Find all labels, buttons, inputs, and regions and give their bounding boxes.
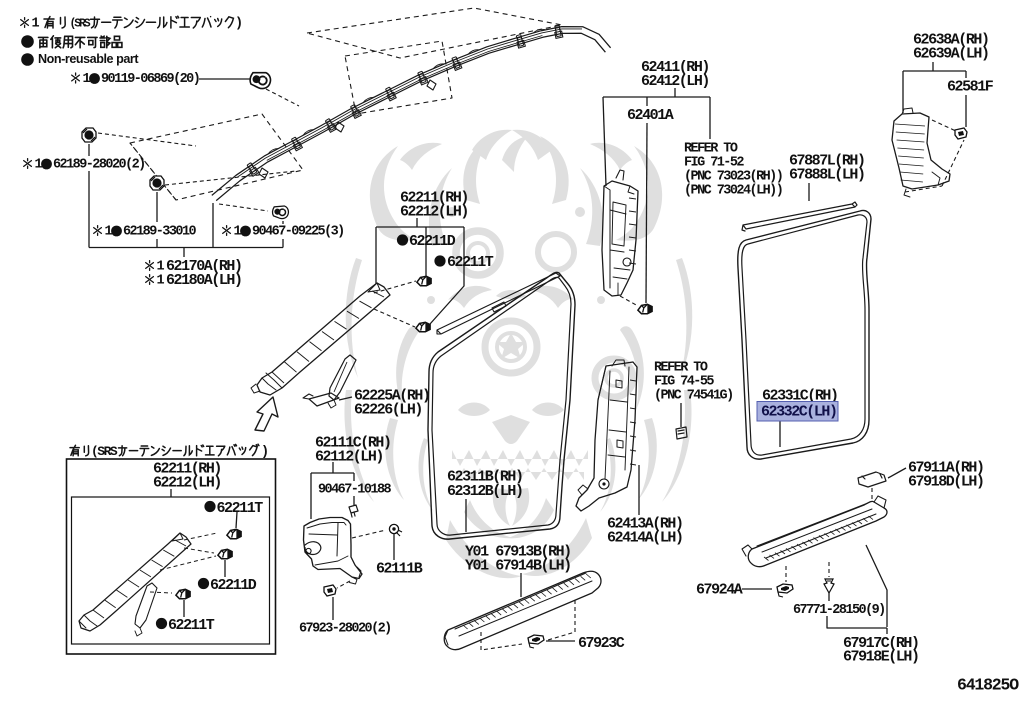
- svg-text:62226(LH): 62226(LH): [354, 402, 422, 419]
- svg-text:67923C: 67923C: [578, 635, 625, 652]
- svg-text:Y01 67914B(LH): Y01 67914B(LH): [465, 558, 571, 575]
- svg-text:FIG 74-55: FIG 74-55: [654, 375, 714, 390]
- svg-text:(PNC 73023(RH)): (PNC 73023(RH)): [684, 170, 782, 185]
- svg-text:62581F: 62581F: [947, 79, 994, 96]
- svg-text:67771-28150(9): 67771-28150(9): [793, 603, 885, 618]
- svg-text:62111B: 62111B: [376, 560, 423, 577]
- svg-text:62189-33010: 62189-33010: [123, 225, 197, 240]
- svg-text:62332C(LH): 62332C(LH): [761, 404, 837, 421]
- svg-text:62189-28020(2): 62189-28020(2): [53, 158, 145, 173]
- svg-text:62211T: 62211T: [217, 500, 264, 517]
- svg-text:62401A: 62401A: [627, 107, 674, 124]
- svg-text:62180A(LH): 62180A(LH): [166, 272, 242, 289]
- svg-text:REFER TO: REFER TO: [654, 361, 708, 376]
- svg-text:67924A: 67924A: [696, 582, 743, 599]
- svg-text:62211D: 62211D: [409, 233, 456, 250]
- svg-text:90467-09225(3): 90467-09225(3): [252, 225, 344, 240]
- svg-text:): ): [261, 445, 268, 460]
- svg-text:67918D(LH): 67918D(LH): [908, 474, 984, 491]
- svg-text:90467-10188: 90467-10188: [318, 483, 392, 498]
- svg-text:(PNC 74541G): (PNC 74541G): [654, 389, 733, 404]
- svg-text:62112(LH): 62112(LH): [315, 449, 383, 466]
- svg-text:62639A(LH): 62639A(LH): [913, 46, 989, 63]
- svg-text:62312B(LH): 62312B(LH): [447, 483, 523, 500]
- svg-text:62414A(LH): 62414A(LH): [607, 530, 683, 547]
- svg-text:62211T: 62211T: [447, 254, 494, 271]
- svg-text:67918E(LH): 67918E(LH): [843, 649, 919, 666]
- svg-text:62211T: 62211T: [168, 617, 215, 634]
- svg-text:62212(LH): 62212(LH): [153, 475, 221, 492]
- svg-text:641825O: 641825O: [957, 676, 1019, 695]
- svg-text:67923-28020(2): 67923-28020(2): [299, 622, 391, 637]
- svg-text:FIG 71-52: FIG 71-52: [684, 156, 744, 171]
- svg-text:67888L(LH): 67888L(LH): [789, 167, 865, 184]
- svg-text:62412(LH): 62412(LH): [641, 73, 709, 90]
- svg-text:(SRS: (SRS: [91, 444, 118, 459]
- svg-text:90119-06869(20): 90119-06869(20): [101, 72, 199, 87]
- svg-text:(SRS: (SRS: [70, 18, 91, 31]
- svg-text:REFER TO: REFER TO: [684, 142, 738, 157]
- svg-text:62211D: 62211D: [210, 577, 257, 594]
- svg-text:Non-reusable part: Non-reusable part: [38, 52, 139, 66]
- svg-text:62212(LH): 62212(LH): [400, 204, 468, 221]
- svg-text:): ): [235, 17, 242, 32]
- svg-text:(PNC 73024(LH)): (PNC 73024(LH)): [684, 184, 782, 199]
